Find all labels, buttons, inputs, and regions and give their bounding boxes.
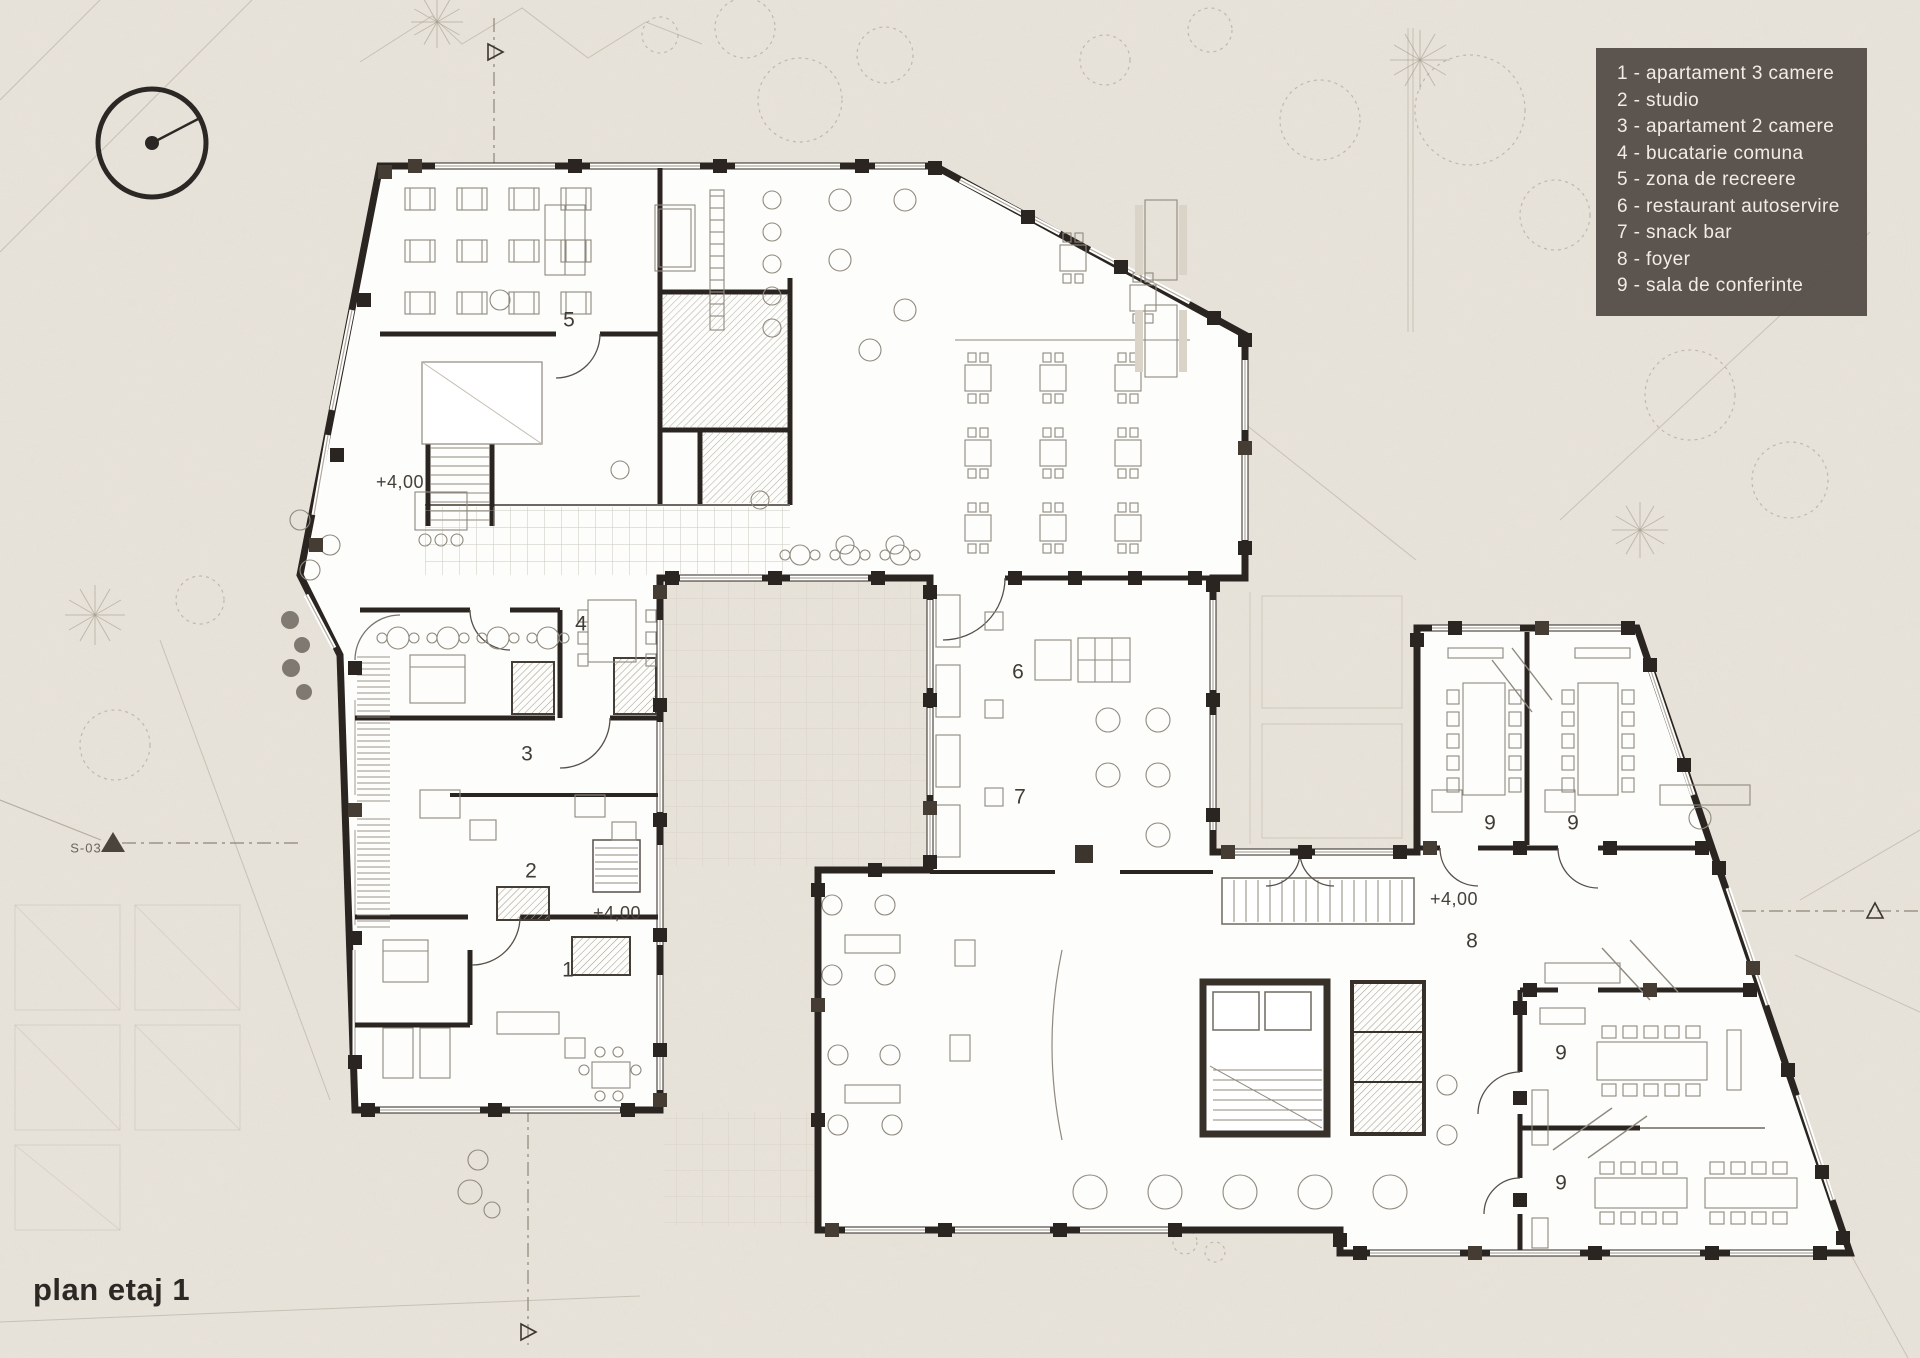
room-number-label: 4: [575, 613, 587, 636]
legend-item-9: 9 - sala de conferinte: [1617, 273, 1857, 300]
elevation-label: +4,00: [376, 472, 424, 492]
room-number-label: 9: [1555, 1042, 1567, 1065]
legend-item-4: 4 - bucatarie comuna: [1617, 141, 1857, 168]
room-number-label: 8: [1466, 930, 1478, 953]
room-number-label: 9: [1555, 1172, 1567, 1195]
page-title: plan etaj 1: [33, 1272, 190, 1308]
legend-item-6: 6 - restaurant autoservire: [1617, 194, 1857, 221]
legend-item-8: 8 - foyer: [1617, 247, 1857, 274]
room-number-label: 2: [525, 860, 537, 883]
room-number-label: 6: [1012, 661, 1024, 684]
room-number-label: 3: [521, 743, 533, 766]
room-number-label: 5: [563, 309, 575, 332]
room-number-label: 1: [562, 959, 574, 982]
legend-box: 1 - apartament 3 camere 2 - studio 3 - a…: [1596, 48, 1867, 316]
legend-item-7: 7 - snack bar: [1617, 220, 1857, 247]
elevation-label: +4,00: [1430, 889, 1478, 909]
room-number-label: 9: [1484, 812, 1496, 835]
section-label: S-03: [70, 841, 101, 856]
legend-item-5: 5 - zona de recreere: [1617, 167, 1857, 194]
floor-plan-sheet: 543216789999+4,00+4,00+4,00S-03 1 - apar…: [0, 0, 1920, 1358]
room-number-label: 7: [1014, 786, 1026, 809]
legend-item-1: 1 - apartament 3 camere: [1617, 61, 1857, 88]
legend-item-3: 3 - apartament 2 camere: [1617, 114, 1857, 141]
room-number-label: 9: [1567, 812, 1579, 835]
elevation-label: +4,00: [593, 903, 641, 923]
legend-item-2: 2 - studio: [1617, 88, 1857, 115]
